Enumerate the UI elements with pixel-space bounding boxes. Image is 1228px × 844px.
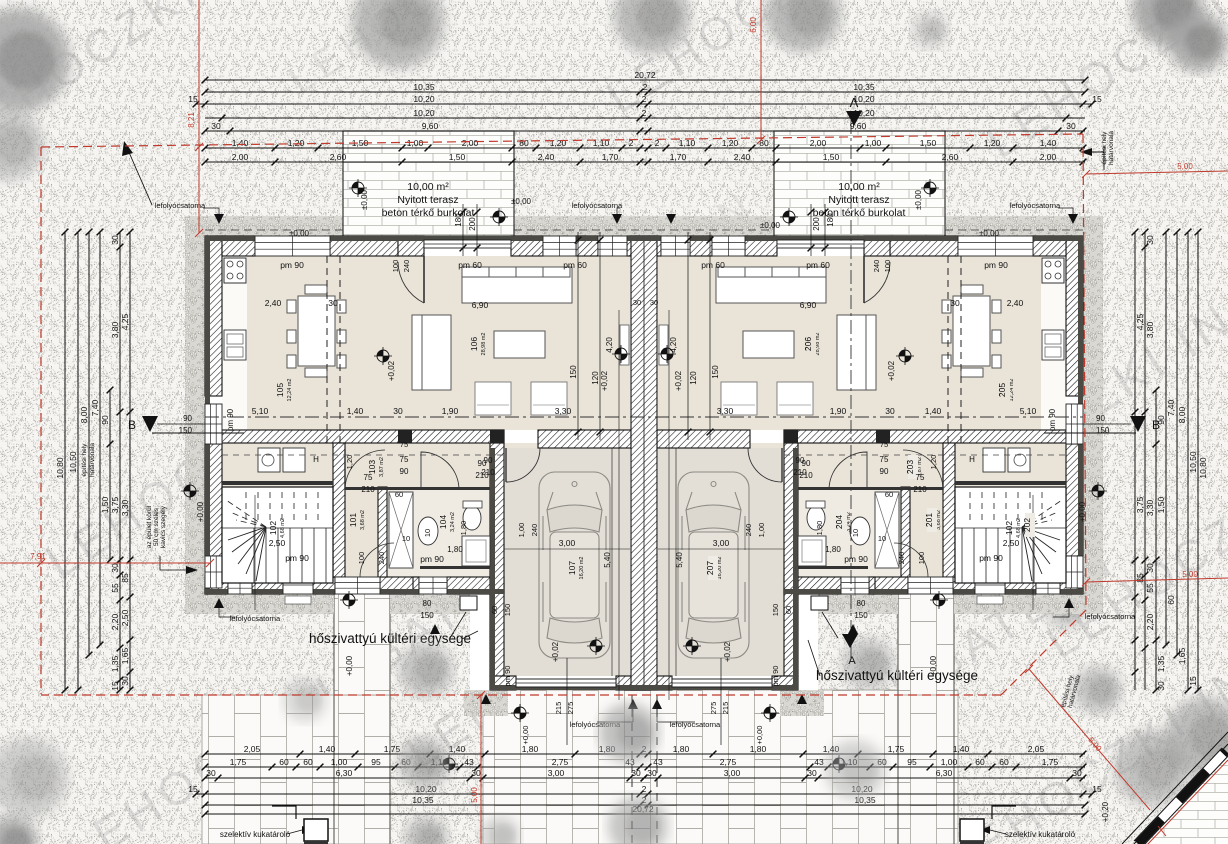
svg-text:2: 2 — [642, 94, 647, 104]
svg-text:240: 240 — [402, 260, 411, 273]
svg-text:2,40: 2,40 — [1007, 298, 1024, 308]
svg-text:15: 15 — [1092, 94, 1102, 104]
svg-text:85: 85 — [1135, 573, 1145, 583]
svg-text:2: 2 — [642, 108, 647, 118]
svg-text:207: 207 — [705, 561, 715, 575]
svg-text:203: 203 — [905, 460, 915, 474]
svg-text:1,00: 1,00 — [865, 138, 882, 148]
svg-text:90: 90 — [484, 456, 493, 465]
svg-text:6,00: 6,00 — [749, 17, 758, 33]
svg-text:pm 90: pm 90 — [226, 408, 235, 431]
svg-text:90: 90 — [880, 467, 889, 476]
svg-text:10,80: 10,80 — [1198, 457, 1208, 479]
svg-text:+0,02: +0,02 — [387, 360, 396, 381]
svg-text:B: B — [1152, 418, 1160, 432]
svg-text:4,25: 4,25 — [1135, 313, 1145, 330]
svg-text:1,00: 1,00 — [331, 757, 348, 767]
svg-text:1,75: 1,75 — [230, 757, 247, 767]
svg-text:1,40: 1,40 — [319, 744, 336, 754]
svg-text:5,10: 5,10 — [1020, 406, 1037, 416]
svg-text:+0,00: +0,00 — [755, 726, 764, 745]
svg-text:60: 60 — [885, 490, 893, 499]
svg-text:8,00: 8,00 — [79, 406, 89, 423]
svg-text:4,25: 4,25 — [120, 313, 130, 330]
svg-text:60: 60 — [303, 757, 313, 767]
svg-text:1,20: 1,20 — [984, 138, 1001, 148]
svg-text:1,10: 1,10 — [593, 138, 610, 148]
svg-text:2,50: 2,50 — [269, 538, 286, 548]
svg-text:1,00: 1,00 — [941, 757, 958, 767]
svg-text:30: 30 — [633, 298, 641, 307]
svg-text:+0,02: +0,02 — [723, 641, 732, 662]
svg-text:206: 206 — [803, 337, 813, 351]
svg-text:55: 55 — [110, 583, 120, 593]
svg-text:50 cm széles: 50 cm széles — [153, 507, 160, 546]
svg-text:15: 15 — [1092, 784, 1102, 794]
svg-text:80: 80 — [423, 599, 432, 608]
svg-text:1,50: 1,50 — [920, 138, 937, 148]
svg-text:90: 90 — [796, 456, 805, 465]
svg-text:2,75: 2,75 — [552, 757, 569, 767]
svg-text:2: 2 — [642, 784, 647, 794]
svg-text:1,80: 1,80 — [673, 744, 690, 754]
svg-text:2,00: 2,00 — [1040, 152, 1057, 162]
svg-text:1,75: 1,75 — [1042, 757, 1059, 767]
svg-text:10,50: 10,50 — [1188, 451, 1198, 473]
svg-text:75: 75 — [916, 473, 925, 482]
svg-text:1,20: 1,20 — [929, 455, 938, 470]
svg-text:1,90: 1,90 — [442, 406, 459, 416]
svg-text:+0,00: +0,00 — [521, 726, 530, 745]
svg-text:10,20: 10,20 — [413, 94, 435, 104]
svg-text:10,35: 10,35 — [853, 82, 875, 92]
svg-text:az épület körül: az épület körül — [146, 505, 153, 548]
svg-text:3,68 m2: 3,68 m2 — [360, 510, 366, 530]
svg-text:210: 210 — [793, 468, 807, 477]
svg-text:15: 15 — [1188, 676, 1198, 686]
svg-text:43: 43 — [653, 757, 663, 767]
svg-text:pm 90: pm 90 — [1048, 408, 1057, 431]
svg-text:1,00: 1,00 — [757, 523, 766, 538]
svg-text:1,70: 1,70 — [670, 152, 687, 162]
svg-text:100: 100 — [357, 552, 366, 565]
svg-text:beton térkő burkolat: beton térkő burkolat — [813, 207, 906, 219]
svg-text:5,40: 5,40 — [603, 552, 612, 568]
svg-text:12,24 m2: 12,24 m2 — [287, 379, 293, 402]
svg-text:2,00: 2,00 — [232, 152, 249, 162]
svg-text:30: 30 — [471, 768, 481, 778]
svg-text:1,80: 1,80 — [825, 545, 841, 554]
svg-text:30: 30 — [1156, 681, 1166, 691]
svg-text:60: 60 — [1166, 595, 1176, 605]
svg-text:16,20 m2: 16,20 m2 — [579, 557, 585, 580]
svg-text:3,00: 3,00 — [713, 538, 730, 548]
svg-text:7,40: 7,40 — [1166, 399, 1176, 416]
svg-text:10: 10 — [402, 534, 410, 543]
svg-text:240: 240 — [744, 524, 753, 537]
svg-text:5,40: 5,40 — [675, 552, 684, 568]
svg-text:1,80: 1,80 — [459, 521, 468, 536]
svg-text:1,35: 1,35 — [110, 655, 120, 672]
svg-text:9,60: 9,60 — [422, 121, 439, 131]
svg-text:lefolyócsatorna: lefolyócsatorna — [230, 614, 281, 623]
svg-text:+0,00: +0,00 — [345, 655, 354, 676]
svg-text:pm 90: pm 90 — [503, 666, 512, 687]
svg-text:30: 30 — [1066, 121, 1076, 131]
svg-text:107: 107 — [567, 561, 577, 575]
svg-text:4,20: 4,20 — [669, 337, 678, 353]
svg-text:90: 90 — [400, 467, 409, 476]
svg-text:100: 100 — [391, 260, 400, 273]
svg-text:B: B — [128, 418, 136, 432]
svg-text:2,00: 2,00 — [810, 138, 827, 148]
svg-text:104: 104 — [438, 515, 448, 529]
svg-text:2: 2 — [643, 82, 648, 92]
svg-text:1,20: 1,20 — [550, 138, 567, 148]
svg-text:3,30: 3,30 — [717, 406, 734, 416]
svg-text:95: 95 — [371, 757, 381, 767]
svg-text:5,00: 5,00 — [1182, 570, 1198, 579]
svg-text:hőszivattyú kültéri egysége: hőszivattyú kültéri egysége — [309, 631, 471, 646]
svg-text:30: 30 — [647, 768, 657, 778]
svg-text:pm 90: pm 90 — [984, 260, 1008, 270]
svg-text:10,00 m²: 10,00 m² — [838, 181, 880, 193]
svg-text:3,75: 3,75 — [1135, 496, 1145, 513]
svg-text:H: H — [313, 455, 319, 464]
svg-text:75: 75 — [880, 455, 889, 464]
svg-text:60: 60 — [784, 606, 793, 614]
svg-text:1,40: 1,40 — [1040, 138, 1057, 148]
svg-text:A: A — [848, 655, 856, 667]
svg-text:30: 30 — [631, 768, 641, 778]
svg-text:8,21: 8,21 — [187, 112, 196, 128]
svg-text:lefolyócsatorna: lefolyócsatorna — [1010, 201, 1061, 210]
svg-text:15: 15 — [110, 681, 120, 691]
svg-text:+0,00: +0,00 — [196, 501, 205, 522]
svg-text:lefolyócsatorna: lefolyócsatorna — [1085, 612, 1136, 621]
svg-text:határvonala: határvonala — [89, 443, 96, 477]
svg-text:1,40: 1,40 — [232, 138, 249, 148]
svg-text:1,50: 1,50 — [1156, 496, 1166, 513]
svg-text:205: 205 — [997, 383, 1007, 397]
svg-text:150: 150 — [1096, 426, 1110, 435]
svg-text:6,90: 6,90 — [472, 300, 489, 310]
svg-text:30: 30 — [650, 298, 658, 307]
svg-text:1,20: 1,20 — [345, 455, 354, 470]
svg-text:szelektív kukatároló: szelektív kukatároló — [220, 830, 291, 839]
svg-text:2,00: 2,00 — [462, 138, 479, 148]
svg-text:85: 85 — [120, 573, 130, 583]
svg-text:150: 150 — [569, 365, 578, 379]
svg-text:1,80: 1,80 — [815, 521, 824, 536]
svg-text:150: 150 — [711, 365, 720, 379]
svg-text:204: 204 — [834, 515, 844, 529]
svg-text:3,30: 3,30 — [120, 499, 130, 516]
svg-text:2,05: 2,05 — [1028, 744, 1045, 754]
svg-text:3,00: 3,00 — [548, 768, 565, 778]
svg-text:1,40: 1,40 — [347, 406, 364, 416]
svg-text:30: 30 — [1145, 563, 1155, 573]
svg-text:±0,00: ±0,00 — [760, 221, 781, 230]
svg-text:10,50: 10,50 — [68, 451, 78, 473]
svg-text:43: 43 — [814, 757, 824, 767]
svg-text:építési hely: építési hely — [1101, 131, 1108, 165]
svg-text:3,87 m2: 3,87 m2 — [379, 457, 385, 477]
svg-text:pm 90: pm 90 — [771, 666, 780, 687]
svg-text:240: 240 — [872, 260, 881, 273]
svg-text:275: 275 — [709, 702, 718, 715]
svg-text:240: 240 — [377, 552, 386, 565]
svg-text:4,68 m2: 4,68 m2 — [280, 518, 286, 538]
svg-text:pm 60: pm 60 — [701, 260, 725, 270]
svg-text:3,80: 3,80 — [110, 321, 120, 338]
svg-text:3,80: 3,80 — [1145, 321, 1155, 338]
svg-text:2,40: 2,40 — [538, 152, 555, 162]
svg-text:30: 30 — [885, 406, 895, 416]
svg-text:10,20: 10,20 — [413, 108, 435, 118]
svg-text:90: 90 — [183, 414, 192, 423]
svg-text:15: 15 — [188, 784, 198, 794]
svg-text:30: 30 — [1072, 768, 1082, 778]
svg-text:15: 15 — [188, 94, 198, 104]
svg-text:2,40: 2,40 — [265, 298, 282, 308]
svg-text:202: 202 — [1022, 518, 1032, 532]
svg-text:+0,02: +0,02 — [674, 370, 683, 391]
svg-text:1,50: 1,50 — [100, 496, 110, 513]
svg-text:2,60: 2,60 — [330, 152, 347, 162]
svg-text:2,75: 2,75 — [720, 757, 737, 767]
svg-text:60: 60 — [395, 490, 403, 499]
svg-text:60: 60 — [999, 757, 1009, 767]
svg-text:5,10: 5,10 — [252, 406, 269, 416]
svg-text:120: 120 — [689, 371, 698, 385]
svg-text:1,50: 1,50 — [449, 152, 466, 162]
svg-text:102: 102 — [1004, 521, 1014, 535]
svg-text:pm 60: pm 60 — [563, 260, 587, 270]
svg-text:1,40: 1,40 — [449, 744, 466, 754]
svg-text:építési hely: építési hely — [81, 443, 88, 477]
svg-text:106: 106 — [469, 337, 479, 351]
svg-text:95: 95 — [907, 757, 917, 767]
svg-text:±0,00: ±0,00 — [914, 189, 923, 210]
svg-text:100: 100 — [883, 260, 892, 273]
svg-text:30: 30 — [807, 768, 817, 778]
svg-text:105: 105 — [275, 383, 285, 397]
svg-text:1,00: 1,00 — [517, 523, 526, 538]
svg-text:2,60: 2,60 — [942, 152, 959, 162]
svg-text:10: 10 — [878, 534, 886, 543]
svg-text:210: 210 — [361, 485, 375, 494]
svg-text:1,50: 1,50 — [823, 152, 840, 162]
svg-text:60: 60 — [279, 757, 289, 767]
svg-text:Nyitott terasz: Nyitott terasz — [828, 194, 889, 206]
svg-text:3,75: 3,75 — [110, 496, 120, 513]
svg-text:150: 150 — [771, 604, 780, 617]
svg-text:kavics szegély: kavics szegély — [160, 505, 167, 548]
svg-text:75: 75 — [880, 440, 888, 449]
svg-text:pm 60: pm 60 — [458, 260, 482, 270]
svg-text:75: 75 — [364, 473, 373, 482]
svg-text:210: 210 — [913, 485, 927, 494]
svg-text:1,75: 1,75 — [384, 744, 401, 754]
svg-text:7,40: 7,40 — [90, 399, 100, 416]
svg-text:30: 30 — [211, 121, 221, 131]
svg-text:1,35: 1,35 — [1156, 655, 1166, 672]
svg-text:3,00: 3,00 — [559, 538, 576, 548]
svg-text:4,20: 4,20 — [605, 337, 614, 353]
svg-text:10,80: 10,80 — [55, 457, 65, 479]
svg-text:±0,00: ±0,00 — [511, 197, 532, 206]
svg-text:2,20: 2,20 — [1145, 613, 1155, 630]
svg-text:Nyitott terasz: Nyitott terasz — [397, 194, 458, 206]
svg-text:30: 30 — [206, 768, 216, 778]
svg-text:+0,02: +0,02 — [600, 370, 609, 391]
svg-text:150: 150 — [503, 604, 512, 617]
svg-text:275: 275 — [566, 702, 575, 715]
svg-text:215: 215 — [721, 702, 730, 715]
svg-text:+0,20: +0,20 — [1101, 801, 1110, 822]
svg-text:lefolyócsatorna: lefolyócsatorna — [155, 201, 206, 210]
svg-text:1,80: 1,80 — [447, 545, 463, 554]
svg-text:215: 215 — [554, 702, 563, 715]
svg-text:1,90: 1,90 — [830, 406, 847, 416]
svg-text:101: 101 — [348, 513, 358, 527]
svg-text:60: 60 — [975, 757, 985, 767]
svg-text:6,30: 6,30 — [936, 768, 953, 778]
svg-text:1,70: 1,70 — [602, 152, 619, 162]
svg-text:55: 55 — [1145, 583, 1155, 593]
svg-text:102: 102 — [268, 521, 278, 535]
svg-text:szelektív kukatároló: szelektív kukatároló — [1005, 830, 1076, 839]
svg-text:30: 30 — [120, 676, 130, 686]
svg-text:10,35: 10,35 — [412, 795, 434, 805]
svg-text:+0,02: +0,02 — [551, 641, 560, 662]
svg-text:240: 240 — [530, 524, 539, 537]
svg-text:1,75: 1,75 — [888, 744, 905, 754]
svg-text:150: 150 — [179, 426, 193, 435]
svg-text:1,40: 1,40 — [925, 406, 942, 416]
svg-text:30: 30 — [1145, 235, 1155, 245]
svg-text:1,20: 1,20 — [288, 138, 305, 148]
svg-text:2,50: 2,50 — [120, 609, 130, 626]
svg-text:lefolyócsatorna: lefolyócsatorna — [670, 720, 721, 729]
svg-text:10: 10 — [851, 529, 860, 537]
svg-text:pm 90: pm 90 — [979, 553, 1003, 563]
svg-text:határvonala: határvonala — [1108, 131, 1115, 165]
svg-text:150: 150 — [420, 611, 434, 620]
svg-text:120: 120 — [591, 371, 600, 385]
svg-text:+0,02: +0,02 — [887, 360, 896, 381]
svg-text:hőszivattyú kültéri egysége: hőszivattyú kültéri egysége — [816, 668, 978, 683]
svg-text:30: 30 — [110, 235, 120, 245]
svg-text:1,65: 1,65 — [120, 647, 130, 664]
svg-text:80: 80 — [857, 599, 866, 608]
svg-text:240: 240 — [897, 552, 906, 565]
svg-text:1,20: 1,20 — [722, 138, 739, 148]
svg-text:30: 30 — [393, 406, 403, 416]
svg-text:pm 60: pm 60 — [806, 260, 830, 270]
svg-text:3,24 m2: 3,24 m2 — [450, 512, 456, 532]
svg-text:201: 201 — [924, 513, 934, 527]
svg-text:75: 75 — [400, 440, 408, 449]
svg-text:10,35: 10,35 — [413, 82, 435, 92]
svg-text:pm 90: pm 90 — [280, 260, 304, 270]
svg-text:5,00: 5,00 — [1177, 162, 1193, 171]
svg-text:10,00 m²: 10,00 m² — [407, 181, 449, 193]
svg-text:1,40: 1,40 — [953, 744, 970, 754]
svg-text:8,00: 8,00 — [1177, 406, 1187, 423]
svg-text:100: 100 — [917, 552, 926, 565]
svg-text:5,00: 5,00 — [470, 787, 479, 803]
svg-text:H: H — [969, 455, 975, 464]
svg-text:10: 10 — [423, 529, 432, 537]
svg-text:30: 30 — [110, 563, 120, 573]
svg-text:6,90: 6,90 — [800, 300, 817, 310]
svg-text:pm 90: pm 90 — [844, 554, 868, 564]
svg-text:28,98 m2: 28,98 m2 — [481, 333, 487, 356]
svg-text:90: 90 — [1096, 414, 1105, 423]
svg-text:A: A — [850, 95, 859, 110]
svg-text:30: 30 — [328, 298, 338, 308]
svg-text:1,65: 1,65 — [1177, 647, 1187, 664]
svg-text:75: 75 — [400, 455, 409, 464]
svg-text:103: 103 — [367, 460, 377, 474]
svg-text:3,30: 3,30 — [555, 406, 572, 416]
svg-text:2,50: 2,50 — [1003, 538, 1020, 548]
svg-text:2,40: 2,40 — [734, 152, 751, 162]
svg-text:lefolyócsatorna: lefolyócsatorna — [572, 201, 623, 210]
svg-text:80: 80 — [519, 138, 529, 148]
svg-text:150: 150 — [854, 611, 868, 620]
svg-text:6,30: 6,30 — [336, 768, 353, 778]
svg-text:2,20: 2,20 — [110, 613, 120, 630]
svg-text:60: 60 — [490, 606, 499, 614]
svg-text:210: 210 — [481, 468, 495, 477]
svg-text:beton térkő burkolat: beton térkő burkolat — [382, 207, 475, 219]
svg-text:20,72: 20,72 — [634, 70, 656, 80]
svg-text:2,05: 2,05 — [244, 744, 261, 754]
svg-text:pm 90: pm 90 — [285, 553, 309, 563]
svg-text:3,00: 3,00 — [724, 768, 741, 778]
svg-text:3,30: 3,30 — [1145, 499, 1155, 516]
svg-text:30: 30 — [950, 298, 960, 308]
svg-text:90: 90 — [100, 415, 110, 425]
svg-text:pm 90: pm 90 — [420, 554, 444, 564]
svg-text:43: 43 — [464, 757, 474, 767]
